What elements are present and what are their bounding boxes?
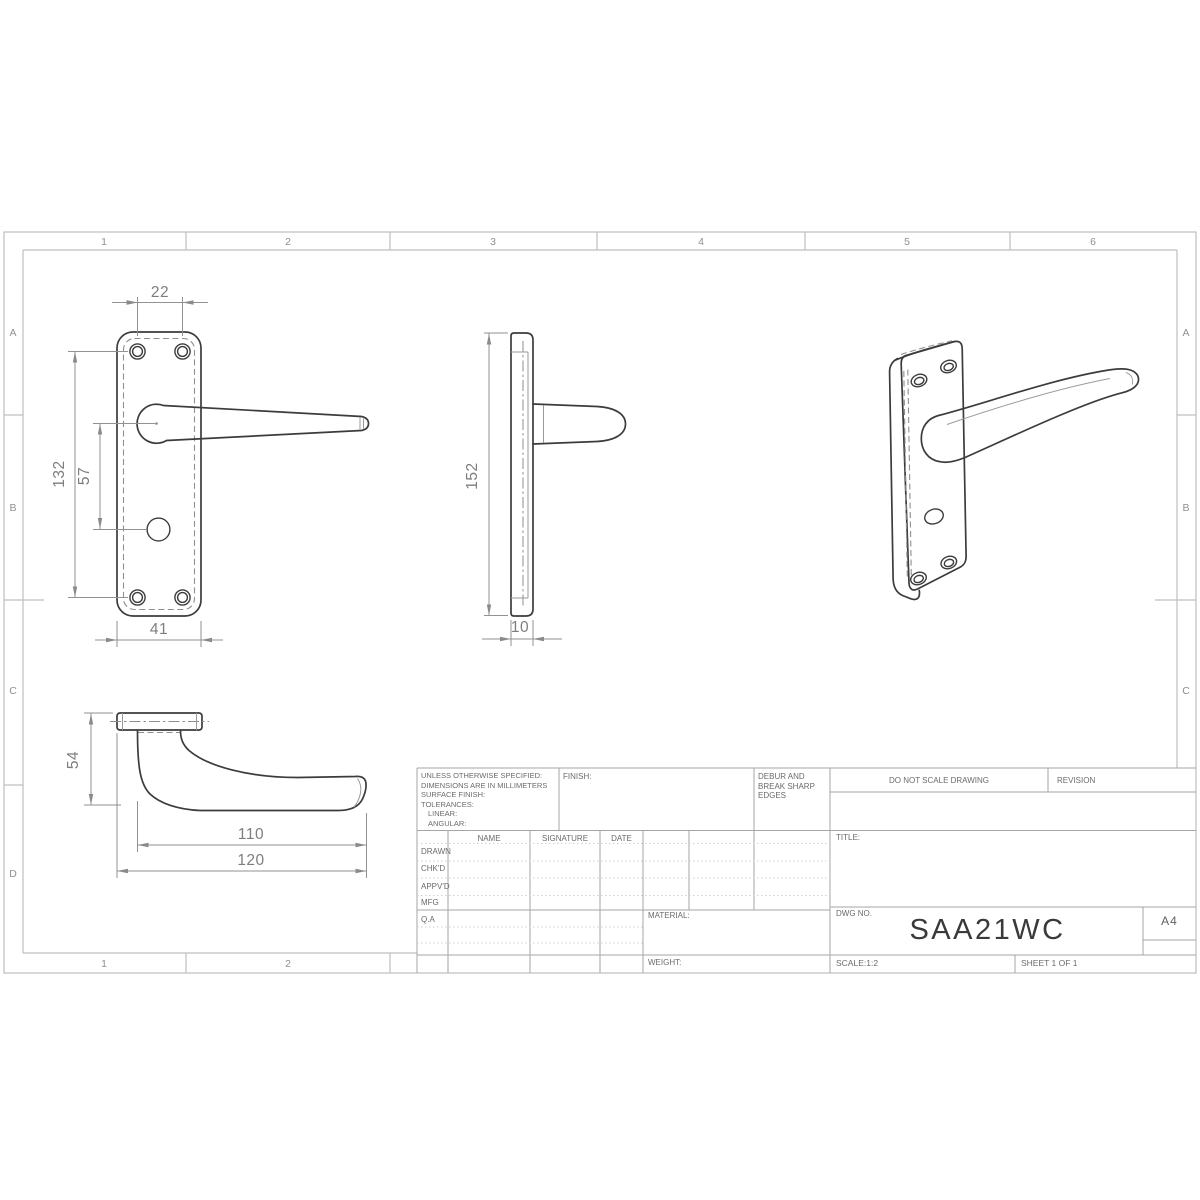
view-isometric <box>890 341 1139 600</box>
drawing-canvas: 1 2 3 4 5 6 1 2 A B C D A B C <box>0 0 1200 1200</box>
front-wc-turn-hole <box>147 518 170 541</box>
side-lever-outline <box>533 404 626 444</box>
note-line: TOLERANCES: <box>421 800 547 810</box>
row-label-chkd: CHK'D <box>421 864 445 874</box>
svg-text:57: 57 <box>76 467 93 485</box>
svg-text:54: 54 <box>65 751 82 769</box>
note-line: UNLESS OTHERWISE SPECIFIED: <box>421 771 547 781</box>
zone-col-6-top: 6 <box>1090 236 1096 248</box>
svg-text:41: 41 <box>150 621 168 638</box>
dim-lever-projection: 54 <box>65 713 121 805</box>
svg-text:10: 10 <box>511 619 529 636</box>
paper-size: A4 <box>1143 917 1196 927</box>
svg-text:22: 22 <box>151 284 169 301</box>
debur-line: EDGES <box>758 791 815 801</box>
svg-text:120: 120 <box>237 852 264 869</box>
do-not-scale-note: DO NOT SCALE DRAWING <box>830 776 1048 786</box>
col-header-signature: SIGNATURE <box>530 834 600 844</box>
zone-row-b-left: B <box>9 502 16 514</box>
col-header-date: DATE <box>600 834 643 844</box>
note-line: ANGULAR: <box>421 819 547 829</box>
side-plate-tangent-edges <box>511 352 528 598</box>
front-lever-tip-edges <box>360 418 364 430</box>
iso-screw-holes <box>909 358 958 587</box>
tolerance-note: UNLESS OTHERWISE SPECIFIED: DIMENSIONS A… <box>421 771 547 828</box>
finish-label: FINISH: <box>563 772 591 782</box>
zone-col-5-top: 5 <box>904 236 910 248</box>
dim-lever-overall-length: 120 <box>117 733 367 878</box>
svg-text:132: 132 <box>51 460 68 487</box>
debur-note: DEBUR AND BREAK SHARP EDGES <box>758 772 815 801</box>
front-lever-outline <box>137 404 368 443</box>
col-header-name: NAME <box>448 834 530 844</box>
debur-line: DEBUR AND <box>758 772 815 782</box>
view-front: 22 132 57 41 <box>51 284 369 647</box>
dwg-no-value: SAA21WC <box>840 914 1135 946</box>
zone-row-c-right: C <box>1182 685 1190 697</box>
view-side: 152 10 <box>464 333 626 646</box>
side-plate-outline <box>511 333 533 616</box>
weight-label: WEIGHT: <box>648 958 681 968</box>
svg-text:110: 110 <box>238 826 264 843</box>
revision-label: REVISION <box>1057 776 1095 786</box>
debur-line: BREAK SHARP <box>758 782 815 792</box>
dim-front-plate-width: 41 <box>95 621 223 647</box>
zone-row-a-right: A <box>1182 327 1189 339</box>
zone-col-1-top: 1 <box>101 236 107 248</box>
note-line: DIMENSIONS ARE IN MILLIMETERS <box>421 781 547 791</box>
zone-col-2-bottom: 2 <box>285 958 291 970</box>
zone-col-3-top: 3 <box>490 236 496 248</box>
zone-row-b-right: B <box>1182 502 1189 514</box>
iso-lever-outline <box>921 369 1138 462</box>
row-label-appvd: APPV'D <box>421 882 450 892</box>
title-label: TITLE: <box>836 833 860 843</box>
dim-front-hole-spacing: 22 <box>112 284 208 336</box>
dim-side-plate-height: 152 <box>464 333 508 616</box>
zone-row-a-left: A <box>9 327 16 339</box>
dim-side-plate-thickness: 10 <box>482 619 562 646</box>
front-lever-center-mark <box>155 422 158 425</box>
view-lever-top: 54 110 120 <box>65 713 367 878</box>
material-label: MATERIAL: <box>648 911 690 921</box>
lever-profile-outline <box>138 731 367 811</box>
front-screw-holes <box>130 344 190 605</box>
sheet-text: SHEET 1 OF 1 <box>1021 959 1078 969</box>
dim-front-lever-to-spindle: 57 <box>76 424 155 530</box>
zone-col-2-top: 2 <box>285 236 291 248</box>
zone-col-4-top: 4 <box>698 236 704 248</box>
note-line: SURFACE FINISH: <box>421 790 547 800</box>
front-plate-outline <box>117 332 201 616</box>
scale-text: SCALE:1:2 <box>836 959 878 969</box>
note-line: LINEAR: <box>421 809 547 819</box>
zone-row-d-left: D <box>9 868 17 880</box>
drawing-sheet: 1 2 3 4 5 6 1 2 A B C D A B C <box>0 0 1200 1200</box>
row-label-qa: Q.A <box>421 915 435 925</box>
row-label-drawn: DRAWN <box>421 847 451 857</box>
zone-row-c-left: C <box>9 685 17 697</box>
zone-col-1-bottom: 1 <box>101 958 107 970</box>
row-label-mfg: MFG <box>421 898 439 908</box>
front-plate-hidden-edge <box>124 339 195 610</box>
iso-wc-turn-hole <box>923 506 946 526</box>
svg-text:152: 152 <box>464 462 481 489</box>
